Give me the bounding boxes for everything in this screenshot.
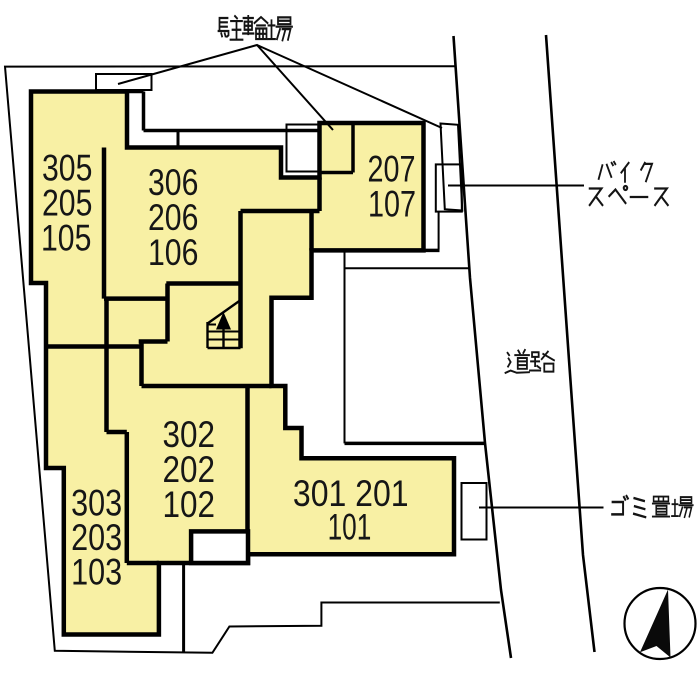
- svg-text:105: 105: [41, 217, 91, 258]
- svg-text:106: 106: [148, 232, 198, 273]
- svg-text:107: 107: [368, 183, 416, 224]
- svg-text:102: 102: [163, 484, 216, 525]
- svg-text:103: 103: [71, 552, 122, 593]
- svg-text:101: 101: [328, 507, 372, 548]
